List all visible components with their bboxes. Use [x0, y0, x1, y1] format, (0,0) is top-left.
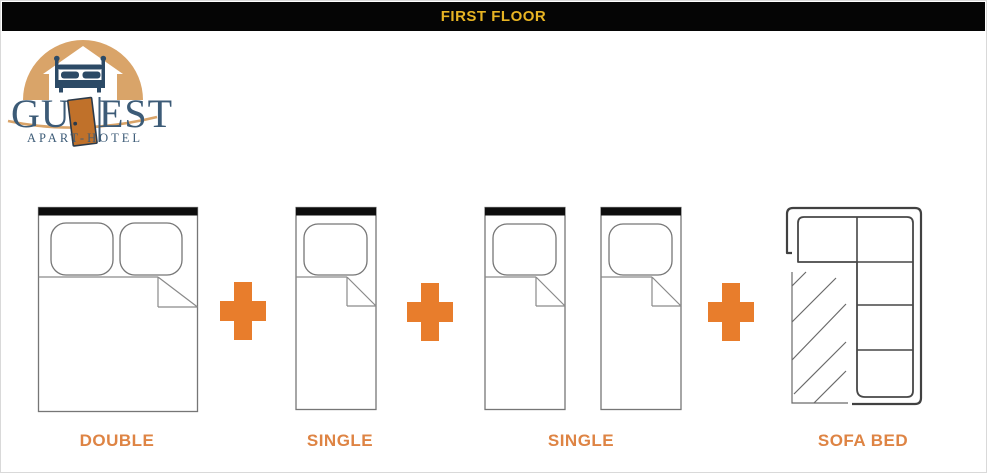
bed-label: SINGLE — [307, 431, 373, 451]
double-bed-figure — [37, 206, 199, 414]
bed-label: SOFA BED — [818, 431, 908, 451]
guest-apart-hotel-logo: GU EST APART-HOTEL — [5, 38, 195, 156]
floor-plan-screen: FIRST FLOOR GU EST — [0, 0, 987, 473]
sofa-bed-figure — [784, 204, 926, 410]
logo-subtitle: APART-HOTEL — [27, 131, 143, 145]
single-bed-figure — [600, 206, 683, 412]
floor-banner-title: FIRST FLOOR — [441, 8, 547, 25]
bed-label: DOUBLE — [80, 431, 155, 451]
single-bed-figure — [295, 206, 378, 412]
single-bed-figure — [484, 206, 567, 412]
plus-icon — [707, 282, 755, 342]
plus-icon — [219, 281, 267, 341]
floor-banner: FIRST FLOOR — [2, 2, 985, 31]
plus-icon — [406, 282, 454, 342]
logo-word-gu: GU — [11, 91, 71, 136]
bed-label: SINGLE — [548, 431, 614, 451]
logo-word-est: EST — [99, 91, 173, 136]
